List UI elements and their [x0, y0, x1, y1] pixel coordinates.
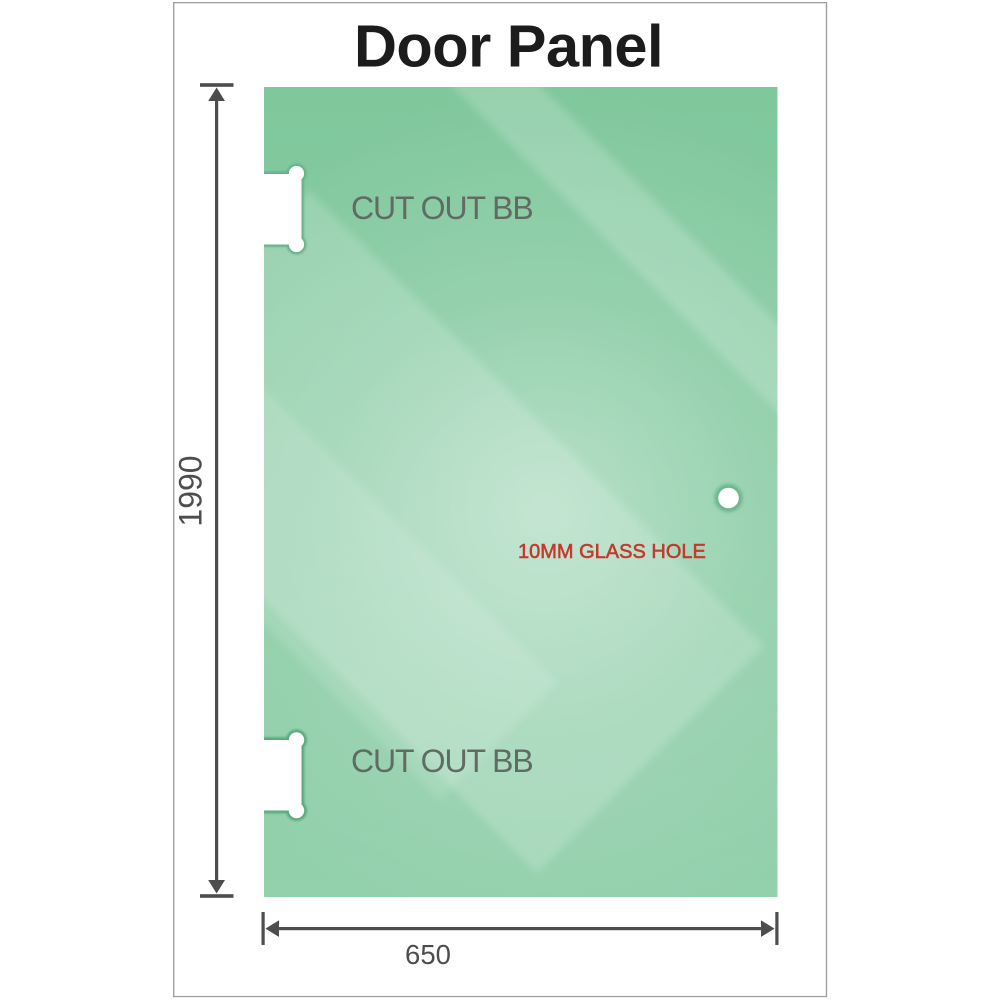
svg-text:Door Panel: Door Panel — [354, 13, 663, 80]
svg-text:1990: 1990 — [173, 455, 209, 526]
svg-text:CUT OUT BB: CUT OUT BB — [351, 190, 533, 226]
svg-text:CUT OUT BB: CUT OUT BB — [351, 743, 533, 779]
svg-text:650: 650 — [405, 939, 451, 970]
svg-text:10MM GLASS HOLE: 10MM GLASS HOLE — [518, 541, 706, 563]
